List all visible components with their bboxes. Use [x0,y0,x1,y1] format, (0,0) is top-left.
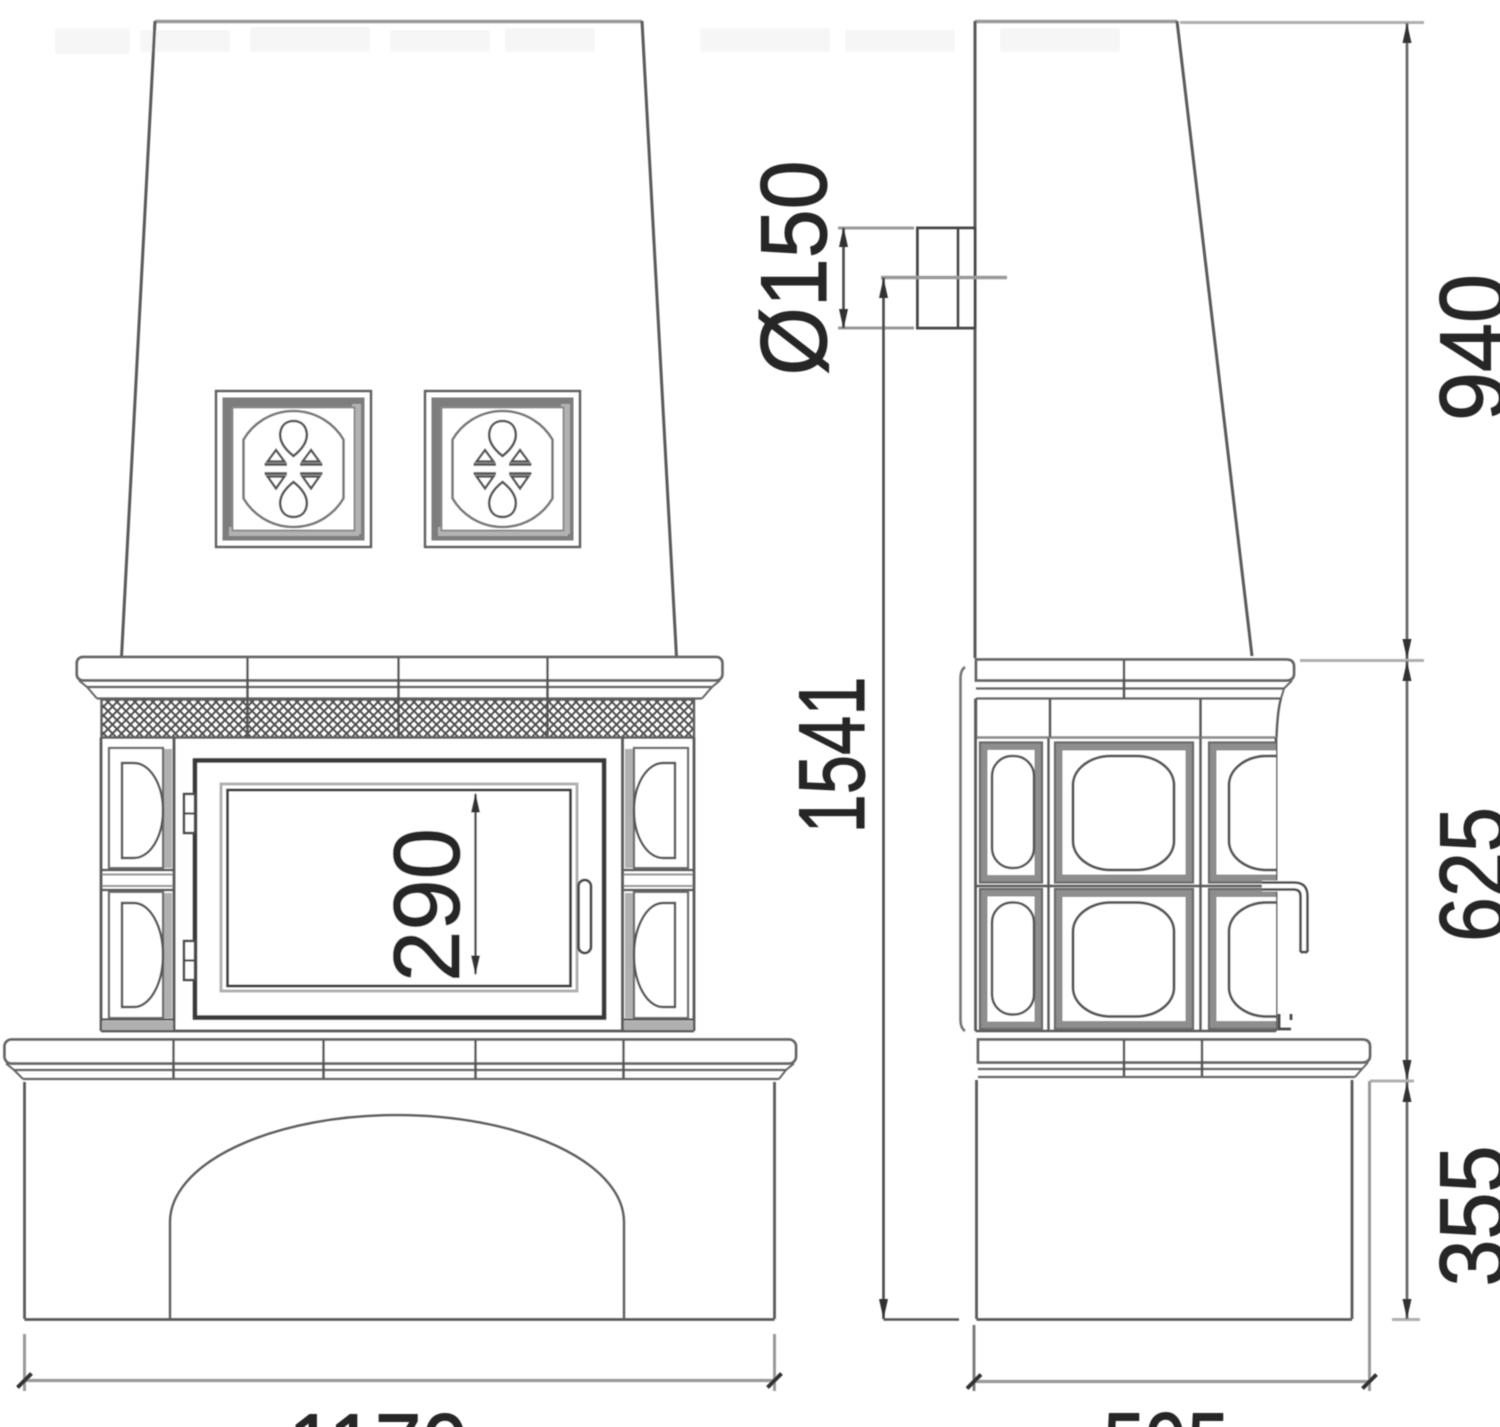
svg-text:1541: 1541 [779,677,884,834]
svg-text:Ø150: Ø150 [741,161,846,376]
svg-text:595: 595 [1103,1393,1229,1427]
svg-text:290: 290 [374,828,479,982]
svg-text:625: 625 [1420,807,1500,942]
svg-text:355: 355 [1420,1146,1500,1287]
svg-text:940: 940 [1420,274,1500,421]
svg-text:1170: 1170 [288,1394,468,1427]
